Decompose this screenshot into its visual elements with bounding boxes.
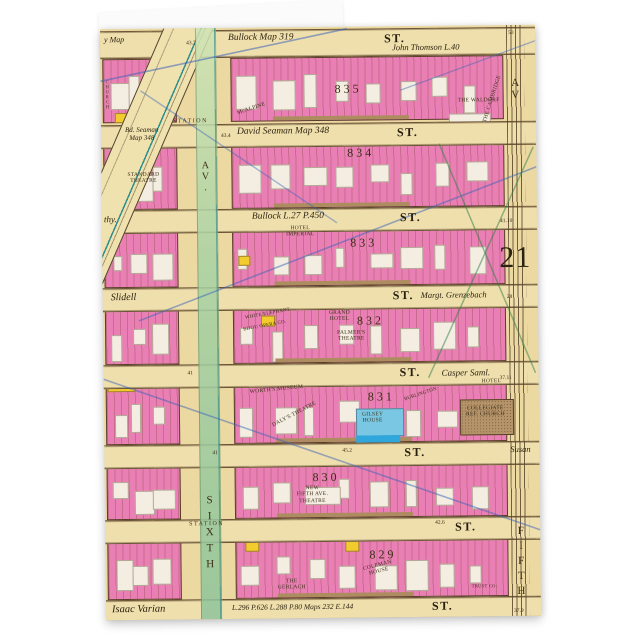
street8-west-name: Isaac Varian xyxy=(112,604,165,617)
product-photo: BROADWAY y Map Bullock Map 319 ST. John … xyxy=(0,0,644,644)
corner-number: 43.7 xyxy=(186,40,196,46)
sixth-avenue-name: SIXTH xyxy=(203,494,216,574)
street1-name: Bullock Map 319 xyxy=(228,32,294,44)
street6-east-name: Susan xyxy=(510,445,530,455)
fifth-ave-theatre-label: NEW FIFTH AVE. THEATRE xyxy=(297,485,329,504)
street8-st: ST. xyxy=(432,600,453,614)
gilsey-house-label: GILSEY HOUSE xyxy=(362,411,383,424)
labels-layer: y Map Bullock Map 319 ST. John Thomson L… xyxy=(100,25,541,621)
coleman-house-label: COLEMAN HOUSE xyxy=(362,559,394,579)
street8-number: 37.9 xyxy=(514,608,524,614)
plate-number: 21 xyxy=(499,241,531,276)
grand-hotel-label: GRAND HOTEL xyxy=(329,310,350,323)
street8-name: L.296 P.626 L.288 P.80 Maps 232 E.144 xyxy=(232,603,353,613)
fifth-avenue-av-label: AV xyxy=(508,77,521,101)
church-label: CHURCH xyxy=(104,79,109,109)
street2-number: 43.4 xyxy=(221,133,231,139)
block-number-833: 833 xyxy=(350,236,377,250)
trust-co-label: TRUST CO. xyxy=(472,583,497,588)
street2-st: ST. xyxy=(397,126,418,140)
bijou-opera-label: BIJOU OPERA CO. xyxy=(243,320,287,333)
street4-number: 28 xyxy=(507,294,513,300)
street1-east-name: John Thomson L.40 xyxy=(392,43,459,53)
mcalpine-label: McALPINE xyxy=(237,101,267,116)
block-number-834: 834 xyxy=(347,146,374,160)
palmers-theatre-label: PALMER'S THEATRE xyxy=(337,330,365,343)
street4-st: ST. xyxy=(393,289,414,303)
street6-marker: 41 xyxy=(212,450,218,456)
street1-number: 50 xyxy=(508,30,514,36)
street1-west-name: y Map xyxy=(104,35,124,44)
street3-st: ST. xyxy=(400,211,421,225)
street7-st: ST. xyxy=(455,520,476,534)
hotel-imperial-label: HOTEL IMPERIAL xyxy=(286,225,315,238)
block-number-830: 830 xyxy=(313,471,340,485)
station-label-north: STATION xyxy=(173,118,208,125)
block-number-832: 832 xyxy=(357,314,384,328)
worths-museum-label: WORTH'S MUSEUM xyxy=(250,384,304,396)
street5-east-name: Casper Saml. xyxy=(441,367,490,378)
street2-name: David Seaman Map 348 xyxy=(237,126,329,138)
street3-name: Bullock L.27 P.450 xyxy=(252,211,324,223)
burlington-label: BURLINGTON xyxy=(404,387,438,403)
fifth-avenue-name: FIFTH xyxy=(514,525,527,600)
sixth-avenue-av-label: AV. xyxy=(199,160,211,193)
street3-west-name: thy. xyxy=(104,214,117,224)
street4-east-name: Margt. Grenzebach xyxy=(421,290,487,300)
block-number-835: 835 xyxy=(334,83,361,97)
hotel-label: HOTEL xyxy=(482,378,502,385)
collegiate-church-label: COLLEGIATE REF. CHURCH xyxy=(466,405,505,418)
street6-st: ST. xyxy=(404,446,425,460)
waldorf-label: THE WALDORF xyxy=(449,97,509,104)
block-number-831: 831 xyxy=(368,390,395,404)
gerlach-label: THE GERLACH xyxy=(278,578,306,591)
street4-west-name: Slidell xyxy=(111,292,137,304)
greeting-card-map-front[interactable]: BROADWAY y Map Bullock Map 319 ST. John … xyxy=(100,25,541,621)
standard-theatre-label: STANDARD THEATRE xyxy=(127,172,159,185)
street6-west-number: 45.2 xyxy=(342,448,352,454)
street3-number: 41.10 xyxy=(500,218,512,224)
street7-number: 42.6 xyxy=(435,520,445,526)
dalys-theatre-label: DALY'S THEATRE xyxy=(271,400,317,428)
street5-marker: 41 xyxy=(187,370,193,376)
street5-st: ST. xyxy=(399,366,420,380)
street2-west-name: Bd. Seaman Map 348 xyxy=(125,126,159,142)
